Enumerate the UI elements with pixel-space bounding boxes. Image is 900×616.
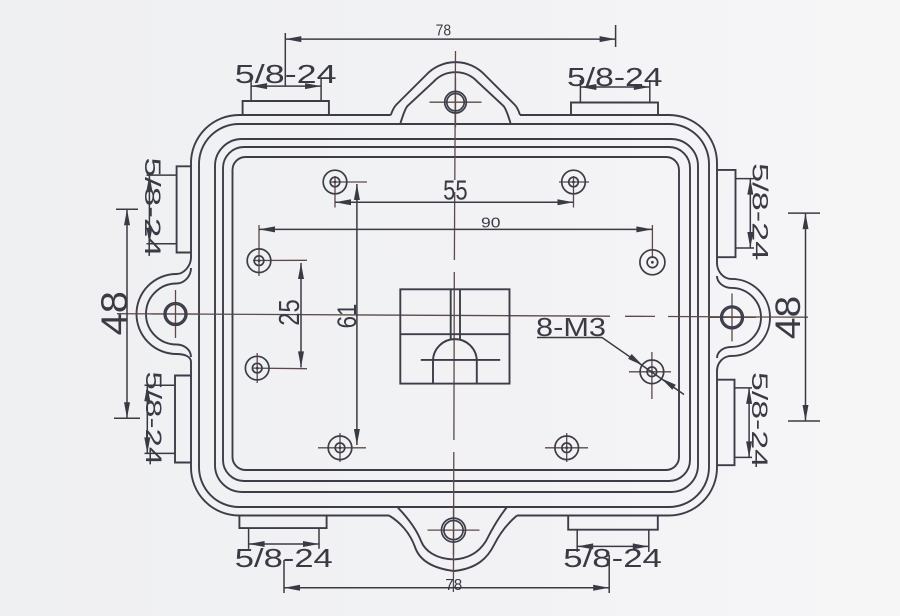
svg-text:25: 25 bbox=[274, 299, 306, 326]
svg-text:5/8-24: 5/8-24 bbox=[563, 543, 662, 573]
svg-text:61: 61 bbox=[332, 304, 362, 329]
svg-text:5/8-24: 5/8-24 bbox=[567, 62, 663, 92]
svg-text:5/8-24: 5/8-24 bbox=[235, 59, 337, 89]
svg-text:5/8-24: 5/8-24 bbox=[747, 372, 772, 468]
svg-text:55: 55 bbox=[443, 175, 468, 206]
svg-text:48: 48 bbox=[94, 291, 135, 335]
svg-text:5/8-24: 5/8-24 bbox=[747, 163, 772, 260]
svg-text:78: 78 bbox=[436, 23, 452, 40]
svg-text:5/8-24: 5/8-24 bbox=[140, 158, 165, 257]
svg-text:90: 90 bbox=[481, 215, 501, 231]
svg-text:5/8-24: 5/8-24 bbox=[141, 371, 166, 465]
svg-text:78: 78 bbox=[445, 577, 462, 594]
svg-text:48: 48 bbox=[769, 296, 808, 339]
